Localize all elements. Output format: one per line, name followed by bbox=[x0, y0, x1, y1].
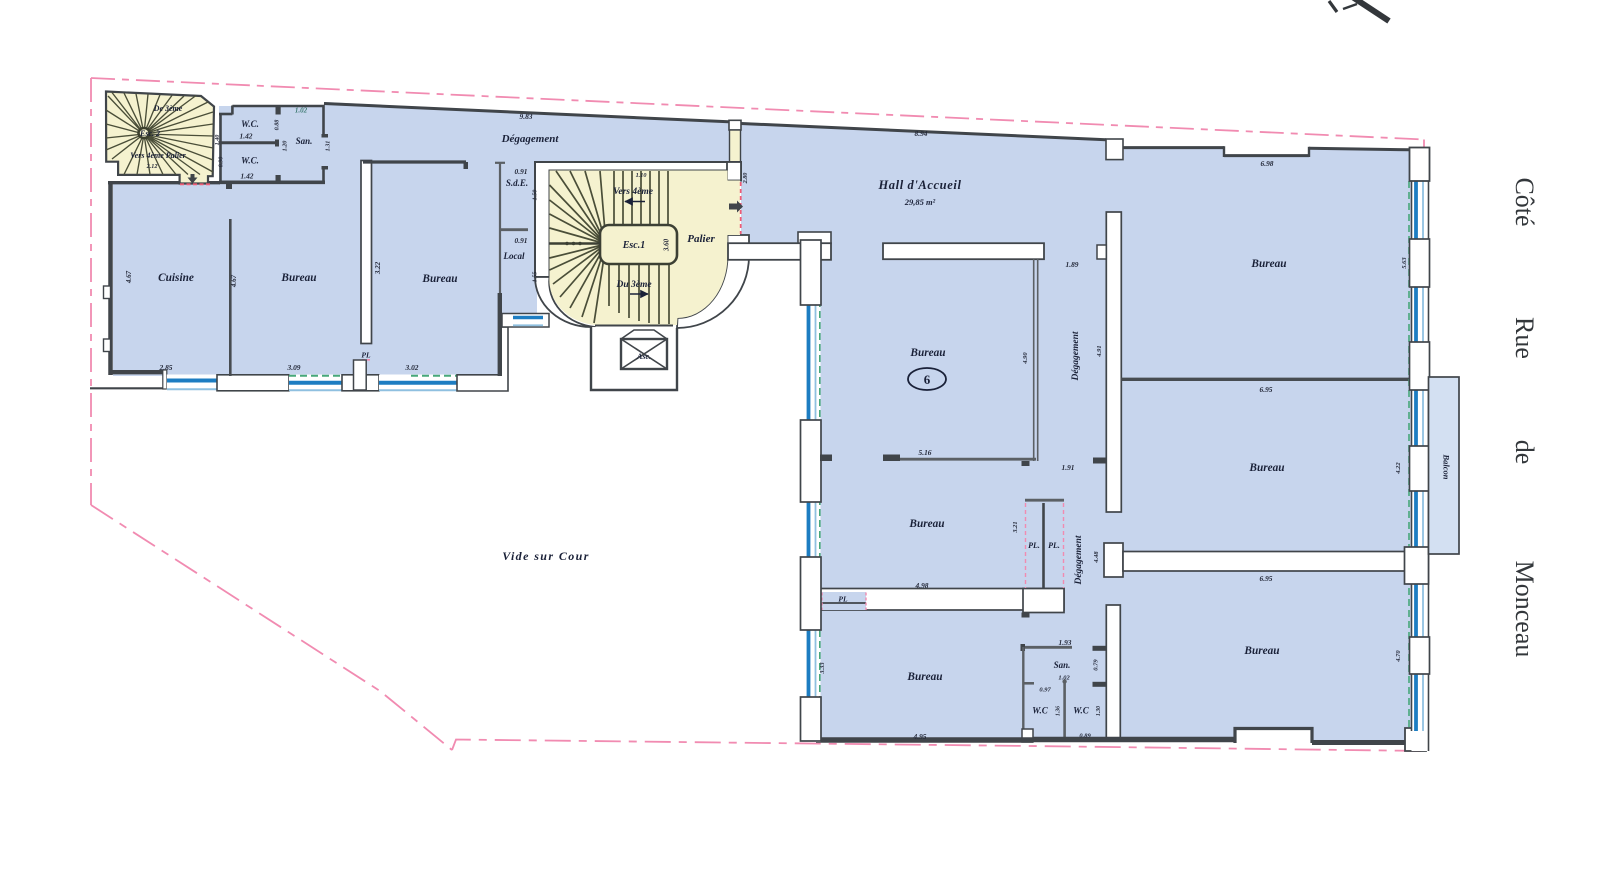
svg-text:1.20: 1.20 bbox=[282, 141, 289, 152]
svg-text:4.98: 4.98 bbox=[915, 581, 929, 590]
svg-text:8.94: 8.94 bbox=[915, 129, 928, 138]
svg-text:6.95: 6.95 bbox=[1260, 574, 1273, 583]
svg-text:de: de bbox=[1510, 440, 1539, 465]
svg-text:Dégagement: Dégagement bbox=[1074, 535, 1084, 585]
svg-text:Bureau: Bureau bbox=[908, 518, 944, 530]
svg-text:Asc.: Asc. bbox=[636, 352, 651, 361]
svg-text:1.42: 1.42 bbox=[241, 172, 254, 181]
svg-text:1.10: 1.10 bbox=[636, 172, 647, 179]
svg-text:Vers 4ème: Vers 4ème bbox=[613, 187, 654, 197]
svg-text:Dégagement: Dégagement bbox=[501, 133, 560, 145]
svg-text:1.36: 1.36 bbox=[1056, 706, 1062, 716]
svg-text:PL.: PL. bbox=[1048, 541, 1060, 550]
svg-text:1.42: 1.42 bbox=[240, 132, 253, 141]
svg-text:0.89: 0.89 bbox=[1079, 733, 1091, 740]
svg-text:2.80: 2.80 bbox=[742, 173, 749, 185]
svg-text:0.90: 0.90 bbox=[218, 157, 225, 168]
svg-text:Dégagement: Dégagement bbox=[1071, 331, 1081, 381]
svg-text:1.02: 1.02 bbox=[295, 107, 308, 115]
svg-text:Esc. 2: Esc. 2 bbox=[139, 129, 160, 138]
svg-text:Esc.1: Esc.1 bbox=[622, 240, 646, 251]
svg-text:Vers 4ème Palier: Vers 4ème Palier bbox=[130, 151, 186, 160]
svg-text:29,85 m²: 29,85 m² bbox=[904, 197, 936, 207]
svg-text:0.79: 0.79 bbox=[1093, 659, 1100, 671]
svg-text:Du 3ème: Du 3ème bbox=[615, 280, 652, 290]
svg-text:1.50: 1.50 bbox=[532, 190, 539, 201]
svg-text:3.33: 3.33 bbox=[819, 662, 826, 675]
svg-text:San.: San. bbox=[296, 136, 313, 146]
svg-text:Bureau: Bureau bbox=[280, 272, 316, 284]
svg-text:Cuisine: Cuisine bbox=[158, 272, 194, 284]
svg-text:0.91: 0.91 bbox=[515, 236, 528, 245]
svg-text:5.16: 5.16 bbox=[919, 448, 932, 457]
svg-text:4.90: 4.90 bbox=[1022, 352, 1029, 365]
svg-text:6.98: 6.98 bbox=[1261, 159, 1274, 168]
svg-text:Bureau: Bureau bbox=[909, 347, 945, 359]
svg-text:3.21: 3.21 bbox=[1012, 521, 1019, 533]
svg-text:Bureau: Bureau bbox=[1250, 258, 1286, 270]
svg-text:4.95: 4.95 bbox=[913, 732, 927, 741]
svg-text:6: 6 bbox=[924, 372, 931, 387]
svg-text:4.70: 4.70 bbox=[1395, 650, 1402, 663]
svg-text:Local: Local bbox=[503, 251, 525, 261]
svg-text:3.09: 3.09 bbox=[287, 363, 301, 372]
svg-text:PL.: PL. bbox=[1028, 541, 1040, 550]
svg-text:Balcon: Balcon bbox=[1442, 453, 1452, 479]
svg-text:0.91: 0.91 bbox=[515, 167, 528, 176]
svg-text:3.02: 3.02 bbox=[405, 363, 419, 372]
svg-text:Monceau: Monceau bbox=[1510, 561, 1539, 658]
svg-text:4.67: 4.67 bbox=[230, 274, 238, 288]
svg-text:PL: PL bbox=[361, 351, 371, 360]
svg-text:1.40: 1.40 bbox=[214, 135, 221, 146]
svg-text:4.91: 4.91 bbox=[1096, 345, 1103, 357]
svg-text:S.d.E.: S.d.E. bbox=[506, 178, 528, 188]
svg-text:1.30: 1.30 bbox=[1096, 706, 1102, 716]
svg-text:W.C: W.C bbox=[1032, 706, 1049, 716]
svg-text:9.83: 9.83 bbox=[520, 112, 533, 121]
svg-text:0.97: 0.97 bbox=[1039, 687, 1051, 694]
svg-text:4.48: 4.48 bbox=[1093, 551, 1100, 564]
svg-text:Vide sur Cour: Vide sur Cour bbox=[502, 549, 590, 563]
svg-text:Bureau: Bureau bbox=[1248, 462, 1284, 474]
svg-text:3.60: 3.60 bbox=[663, 238, 671, 252]
svg-text:1.02: 1.02 bbox=[1058, 675, 1070, 682]
svg-text:2.12: 2.12 bbox=[146, 163, 158, 170]
svg-text:Bureau: Bureau bbox=[906, 671, 942, 683]
svg-text:1.55: 1.55 bbox=[532, 272, 539, 283]
svg-text:0.88: 0.88 bbox=[274, 120, 281, 131]
svg-text:Bureau: Bureau bbox=[1243, 645, 1279, 657]
svg-text:1.91: 1.91 bbox=[1062, 463, 1075, 472]
svg-text:Hall d'Accueil: Hall d'Accueil bbox=[877, 178, 961, 192]
svg-text:W.C: W.C bbox=[1073, 706, 1090, 716]
svg-text:Bureau: Bureau bbox=[421, 273, 457, 285]
svg-text:1.31: 1.31 bbox=[325, 141, 332, 152]
svg-text:San.: San. bbox=[1054, 660, 1071, 670]
svg-text:W.C.: W.C. bbox=[241, 119, 259, 129]
svg-text:1.93: 1.93 bbox=[1059, 638, 1072, 647]
svg-text:1.89: 1.89 bbox=[1066, 260, 1079, 269]
svg-text:3.22: 3.22 bbox=[374, 261, 382, 275]
svg-text:Côté: Côté bbox=[1510, 177, 1539, 226]
svg-text:4.22: 4.22 bbox=[1395, 462, 1402, 475]
svg-text:PL: PL bbox=[838, 595, 848, 604]
svg-text:6.95: 6.95 bbox=[1260, 385, 1273, 394]
svg-text:Palier: Palier bbox=[687, 233, 715, 245]
svg-text:W.C.: W.C. bbox=[241, 156, 259, 166]
svg-text:De 3ème: De 3ème bbox=[153, 104, 183, 113]
svg-text:5.63: 5.63 bbox=[1401, 257, 1408, 269]
svg-text:Rue: Rue bbox=[1510, 317, 1539, 359]
svg-text:2.85: 2.85 bbox=[159, 363, 173, 372]
svg-text:4.67: 4.67 bbox=[125, 270, 133, 284]
